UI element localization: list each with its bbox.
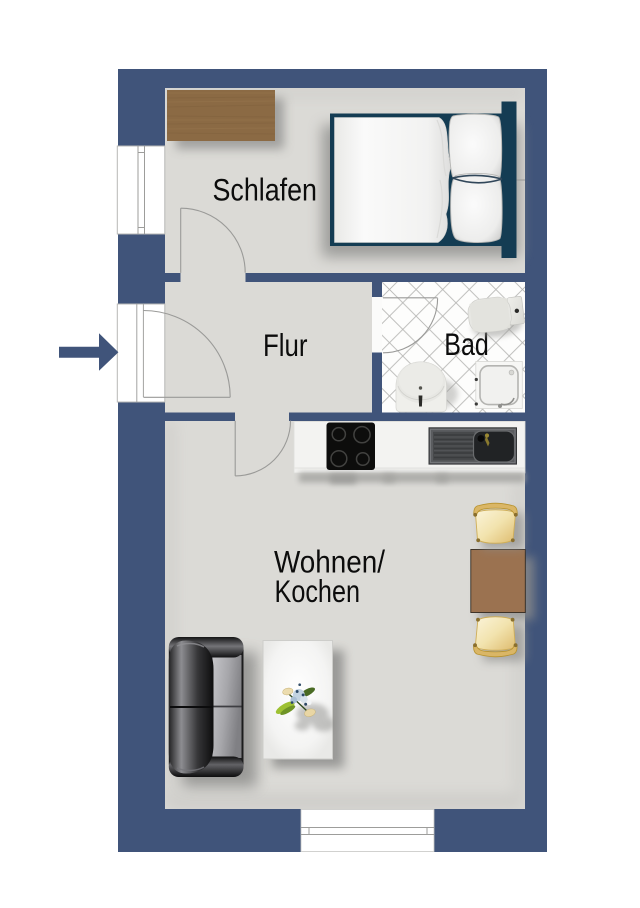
svg-text:Schlafen: Schlafen xyxy=(213,172,318,208)
svg-text:Kochen: Kochen xyxy=(275,573,361,609)
svg-text:Flur: Flur xyxy=(263,327,308,363)
